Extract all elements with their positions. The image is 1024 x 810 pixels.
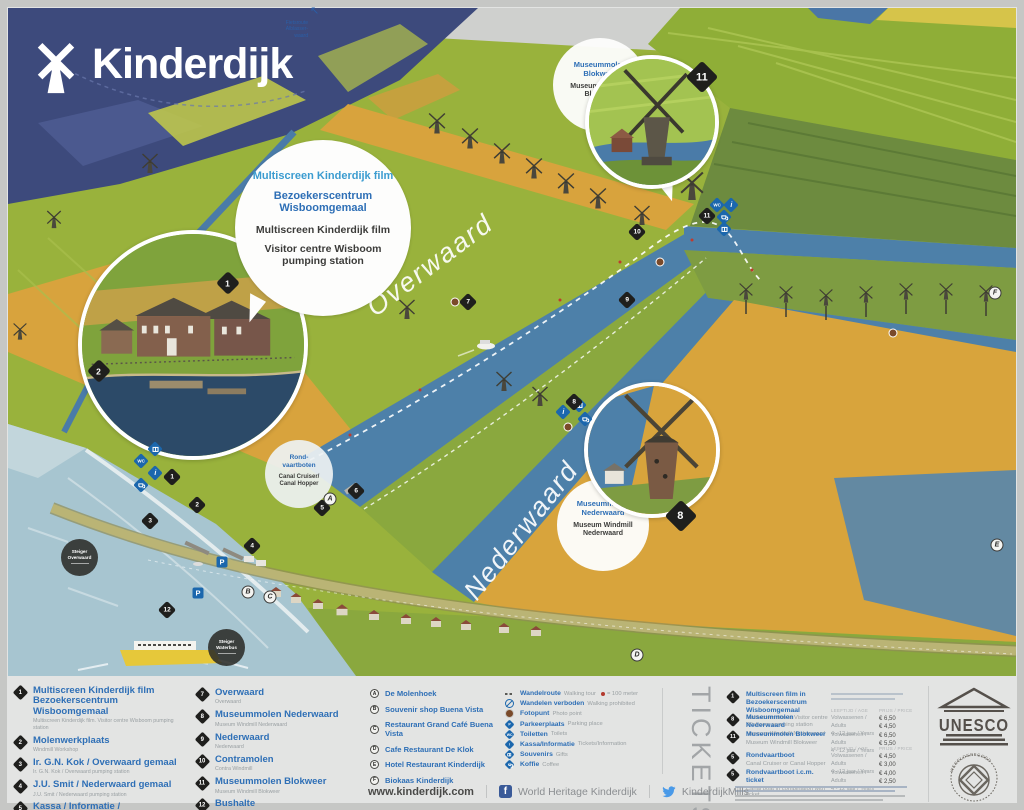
- map-letter-marker: B: [242, 586, 255, 599]
- ticket-row: 11 Museummolen Blokweer Museum Windmill …: [725, 731, 925, 746]
- legend-item: C Restaurant Grand Café Buena Vista: [370, 720, 500, 738]
- film-callout-circle: Multiscreen Kinderdijk film Bezoekerscen…: [235, 140, 411, 316]
- unesco-emblem-icon: UNESCO WERELDERFGOED: [936, 686, 1012, 804]
- legend-item: 10 ContramolenContra Windmill: [196, 755, 360, 773]
- callout-en-title: Multiscreen Kinderdijk film: [251, 224, 395, 236]
- facebook-icon: f: [499, 785, 512, 798]
- legend-column-3: A De Molenhoek B Souvenir shop Buena Vis…: [370, 689, 500, 791]
- no-walking-icon: [505, 699, 514, 708]
- parking-icon: P: [505, 719, 515, 729]
- facebook-link[interactable]: World Heritage Kinderdijk: [518, 786, 637, 798]
- legend-item: A De Molenhoek: [370, 689, 500, 698]
- footer-bar: www.kinderdijk.com f World Heritage Kind…: [368, 785, 749, 798]
- callout-nl-sub: Bezoekerscentrum Wisboomgemaal: [251, 190, 395, 215]
- fine-text-line: [218, 653, 236, 655]
- numbered-diamond-icon: 1: [13, 685, 29, 701]
- ticket-note-lines: [831, 693, 903, 702]
- souvenirs-icon: [505, 750, 515, 760]
- ticket-name-nl: Multiscreen film in Bezoekerscentrum Wis…: [746, 691, 830, 714]
- numbered-diamond-icon: 5: [726, 751, 740, 765]
- map-letter-marker: A: [324, 493, 337, 506]
- map-letter-marker: D: [631, 649, 644, 662]
- letter-circle-icon: B: [370, 705, 379, 714]
- letter-circle-icon: F: [370, 776, 379, 785]
- ticket-prices: € 4,50€ 3,00: [879, 753, 919, 769]
- nederwaard-illustration: [588, 386, 716, 514]
- letter-circle-icon: D: [370, 745, 379, 754]
- legend-item: F Biokaas Kinderdijk: [370, 776, 500, 785]
- boats-label-nl: Rond- vaartboten: [265, 454, 333, 470]
- fine-text-line: [71, 563, 89, 565]
- tickets-panel: TICKETS 1 Multiscreen film in Bezoekersc…: [725, 684, 925, 810]
- numbered-diamond-icon: 11: [195, 776, 211, 792]
- pier-overwaard-circle: Steiger Overwaard: [61, 539, 98, 576]
- legend-item: B Souvenir shop Buena Vista: [370, 705, 500, 714]
- legend-item: 9 NederwaardNederwaard: [196, 733, 360, 751]
- legend-item: 3 Ir. G.N. Kok / Overwaard gemaalIr. G.N…: [14, 758, 186, 776]
- toilets-icon: WC: [505, 729, 515, 739]
- parking-icon: P: [217, 557, 228, 568]
- arrow-up-left-icon: ↖: [310, 4, 319, 17]
- pier-overwaard-label: Steiger Overwaard: [61, 549, 98, 560]
- pier-waterbus-circle: Steiger Waterbus: [208, 629, 245, 666]
- photo-point-icon: [505, 709, 514, 718]
- numbered-diamond-icon: 11: [726, 730, 740, 744]
- photo-point-icon: Fotopunt Photo point: [505, 710, 660, 717]
- ticket-prices: € 6,50€ 4,50: [879, 715, 919, 731]
- no-walking-icon: Wandelen verboden Walking prohibited: [505, 700, 660, 707]
- price-table-header: LEEFTIJD / AGEPRIJS / PRICE: [831, 708, 925, 713]
- info-icon: i: [505, 739, 515, 749]
- legend-item: 1 Multiscreen Kinderdijk film Bezoekersc…: [14, 686, 186, 731]
- numbered-diamond-icon: 10: [195, 754, 211, 770]
- photo-point-icon: [656, 258, 665, 267]
- legend-column-2: 7 OverwaardOverwaard 8 Museummolen Neder…: [196, 688, 360, 810]
- website-link[interactable]: www.kinderdijk.com: [368, 786, 474, 798]
- unesco-logo: UNESCO WERELDERFGOED: [936, 686, 1012, 804]
- numbered-diamond-icon: 1: [726, 690, 740, 704]
- map-letter-marker: C: [264, 591, 277, 604]
- red-dot-icon: [601, 692, 605, 696]
- windmill-logo-icon: [26, 30, 86, 98]
- pier-waterbus-label: Steiger Waterbus: [208, 639, 245, 650]
- twitter-link[interactable]: KinderdijkMills: [682, 786, 749, 798]
- kinderdijk-map-poster: Kinderdijk ↖ Fietsroute Alblasser- waard…: [0, 0, 1024, 810]
- numbered-diamond-icon: 3: [13, 757, 29, 773]
- walking-route-icon: [505, 693, 514, 695]
- letter-circle-icon: E: [370, 760, 379, 769]
- info-icon: i Kassa/Informatie Tickets/Information: [505, 741, 660, 748]
- kinderdijk-logo: Kinderdijk: [26, 30, 292, 98]
- legend-item: 8 Museummolen NederwaardMuseum Windmill …: [196, 710, 360, 728]
- fine-print-lines: [735, 786, 907, 803]
- walking-route-icon: Wandelroute Walking tour = 100 meter: [505, 690, 660, 697]
- parking-icon: P Parkeerplaats Parking place: [505, 721, 660, 728]
- letter-circle-icon: A: [370, 689, 379, 698]
- footer-divider: [649, 785, 650, 798]
- numbered-diamond-icon: 5: [726, 768, 740, 782]
- letter-circle-icon: C: [370, 725, 379, 734]
- legend-item: 11 Museummolen BlokweerMuseum Windmill B…: [196, 777, 360, 795]
- twitter-icon: [662, 786, 676, 798]
- tickets-divider: [928, 686, 929, 802]
- numbered-diamond-icon: 9: [195, 731, 211, 747]
- souvenirs-icon: Souvenirs Gifts: [505, 751, 660, 758]
- legend-divider: [662, 688, 663, 774]
- parking-icon: P: [193, 588, 204, 599]
- nederwaard-label-en: Museum Windmill Nederwaard: [557, 522, 649, 539]
- ticket-prices: € 4,00€ 2,50: [879, 770, 919, 786]
- legend-item: 5 Kassa / Informatie / RondvaartbotenTic…: [14, 802, 186, 810]
- map-letter-marker: F: [989, 287, 1002, 300]
- coffee-icon: [505, 760, 515, 770]
- nederwaard-photo-circle: [584, 382, 720, 518]
- legend-column-4: Wandelroute Walking tour = 100 meter Wan…: [505, 690, 660, 772]
- numbered-diamond-icon: 8: [726, 713, 740, 727]
- legend-item: E Hotel Restaurant Kinderdijk: [370, 760, 500, 769]
- photo-point-icon: [451, 298, 460, 307]
- legend-item: 7 OverwaardOverwaard: [196, 688, 360, 706]
- price-table-header: LEEFTIJD / AGEPRIJS / PRICE: [831, 746, 925, 751]
- legend-item: D Cafe Restaurant De Klok: [370, 745, 500, 754]
- numbered-diamond-icon: 4: [13, 779, 29, 795]
- boats-label-en: Canal Cruiser/ Canal Hopper: [265, 474, 333, 488]
- callout-nl-title: Multiscreen Kinderdijk film: [251, 170, 395, 183]
- footer-divider: [486, 785, 487, 798]
- svg-text:UNESCO: UNESCO: [939, 716, 1009, 735]
- photo-point-icon: [889, 329, 898, 338]
- numbered-diamond-icon: 12: [195, 798, 211, 810]
- legend-column-1: 1 Multiscreen Kinderdijk film Bezoekersc…: [14, 686, 186, 810]
- legend-item: 12 BushalteBus stop: [196, 799, 360, 810]
- logo-title: Kinderdijk: [92, 40, 292, 89]
- callout-en-sub: Visitor centre Wisboom pumping station: [251, 243, 395, 267]
- numbered-diamond-icon: 2: [13, 734, 29, 750]
- numbered-diamond-icon: 7: [195, 687, 211, 703]
- map-letter-marker: E: [991, 539, 1004, 552]
- photo-point-icon: [564, 423, 573, 432]
- numbered-diamond-icon: 5: [13, 801, 29, 810]
- toilets-icon: WC Toiletten Toilets: [505, 731, 660, 738]
- coffee-icon: Koffie Coffee: [505, 761, 660, 768]
- numbered-diamond-icon: 8: [195, 709, 211, 725]
- legend-item: 4 J.U. Smit / Nederwaard gemaalJ.U. Smit…: [14, 780, 186, 798]
- legend-item: 2 MolenwerkplaatsWindmill Workshop: [14, 736, 186, 754]
- ticket-row: 5 Rondvaartboot Canal Cruiser or Canal H…: [725, 752, 925, 767]
